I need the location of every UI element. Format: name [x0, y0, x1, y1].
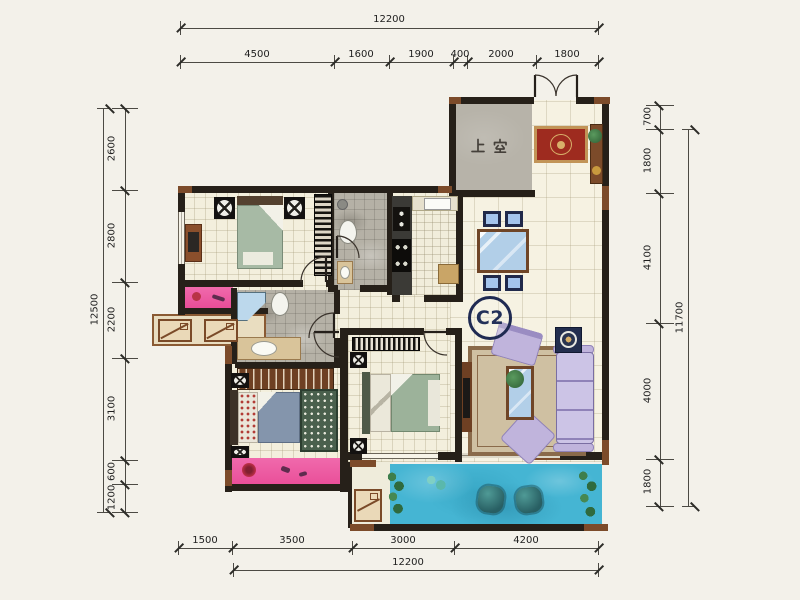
dimension-tick [233, 563, 234, 577]
dimension-line [660, 105, 661, 506]
void-label-glyphs [472, 140, 506, 153]
dimension-line [688, 129, 689, 506]
dimension-tick [97, 108, 109, 109]
door-arc-bath2 [309, 313, 334, 338]
dimension-value: 3100 [107, 387, 118, 431]
dimension-tick [112, 108, 138, 109]
dimension-line [233, 570, 598, 571]
door-arc-bedroom3 [424, 332, 447, 355]
dimension-tick [598, 55, 599, 69]
dimension-value: 3500 [270, 535, 314, 546]
dimension-line [178, 548, 598, 549]
dimension-value: 1200 [107, 476, 118, 520]
dimension-tick [682, 506, 694, 507]
dimension-tick [646, 506, 674, 507]
floor-plan-image: 上空 C2 12200 4500 1600 1900 400 2000 1800… [0, 0, 800, 600]
dimension-value: 2600 [107, 127, 118, 171]
dimension-tick [598, 21, 599, 35]
dimension-tick [598, 563, 599, 577]
dimension-value: 1900 [399, 49, 443, 60]
dimension-value: 1800 [643, 139, 654, 183]
dimension-value: 3000 [381, 535, 425, 546]
dimension-value: 1800 [643, 460, 654, 504]
dimension-line [180, 28, 598, 29]
door-arc-bath1 [337, 236, 359, 258]
unit-badge: C2 [468, 296, 512, 340]
door-arc-bedroom1 [301, 257, 326, 282]
dimension-line [103, 108, 104, 512]
dimension-value: 12500 [90, 288, 101, 332]
door-arc-entry-left [535, 75, 556, 96]
dimension-tick [112, 282, 138, 283]
dimension-tick [334, 55, 335, 69]
dimension-tick [232, 541, 233, 555]
dimension-value: 700 [643, 95, 654, 139]
dimension-tick [112, 190, 138, 191]
dimension-value: 400 [445, 49, 475, 60]
dimension-value: 2000 [479, 49, 523, 60]
door-arc-bedroom2 [314, 332, 339, 357]
dimension-value: 2200 [107, 298, 118, 342]
dimension-line [125, 108, 126, 512]
dimension-tick [536, 55, 537, 69]
dimension-value: 11700 [675, 296, 686, 340]
dimension-tick [389, 55, 390, 69]
dimension-tick [112, 358, 138, 359]
dimension-tick [178, 541, 179, 555]
door-swing-arcs [301, 75, 577, 357]
dimension-tick [180, 55, 181, 69]
dimension-value: 4100 [643, 236, 654, 280]
dimension-value: 1800 [545, 49, 589, 60]
dimension-value: 12200 [367, 14, 411, 25]
dimension-tick [180, 21, 181, 35]
dimension-tick [646, 323, 674, 324]
door-leaves [314, 75, 577, 338]
dimension-tick [646, 193, 674, 194]
dimension-value: 4000 [643, 369, 654, 413]
dimension-tick [352, 541, 353, 555]
dimension-tick [598, 541, 599, 555]
dimension-value: 1600 [339, 49, 383, 60]
dimension-value: 1500 [183, 535, 227, 546]
dimension-value: 4200 [504, 535, 548, 546]
dimension-value: 2800 [107, 214, 118, 258]
door-arc-entry-right [556, 75, 577, 96]
dimension-value: 4500 [235, 49, 279, 60]
dimension-value: 12200 [386, 557, 430, 568]
dimension-tick [454, 541, 455, 555]
dimension-tick [682, 129, 694, 130]
